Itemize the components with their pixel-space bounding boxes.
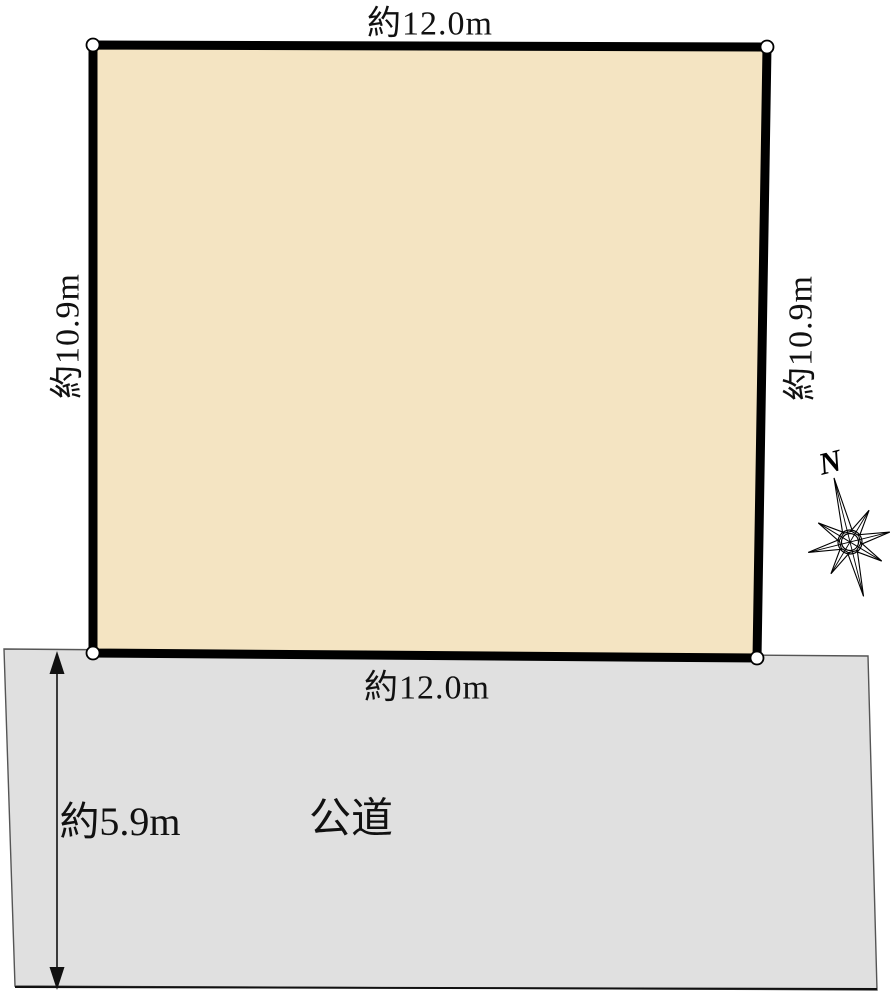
compass-north-label: N — [814, 442, 847, 482]
road-name-label: 公道 — [309, 785, 393, 846]
road-width-label: 約5.9m — [59, 789, 180, 847]
diagram-canvas: N — [0, 0, 896, 1000]
compass-rose: N — [784, 435, 896, 607]
corner-marker-bottom-left — [87, 647, 100, 660]
compass-axis-ew — [808, 532, 890, 552]
corner-marker-bottom-right — [751, 652, 764, 665]
dimension-label-right-depth: 約10.9m — [773, 275, 822, 401]
land-parcel-shape — [93, 45, 767, 658]
land-plot-diagram: N 約12.0m 約10.9m 約10.9m 約12.0m 約5.9m 公道 — [0, 0, 896, 1000]
dimension-label-top-width: 約12.0m — [367, 0, 493, 45]
dimension-label-bottom-width: 約12.0m — [364, 660, 490, 709]
corner-marker-top-left — [87, 39, 100, 52]
corner-marker-top-right — [761, 41, 774, 54]
dimension-label-left-depth: 約10.9m — [40, 273, 89, 399]
